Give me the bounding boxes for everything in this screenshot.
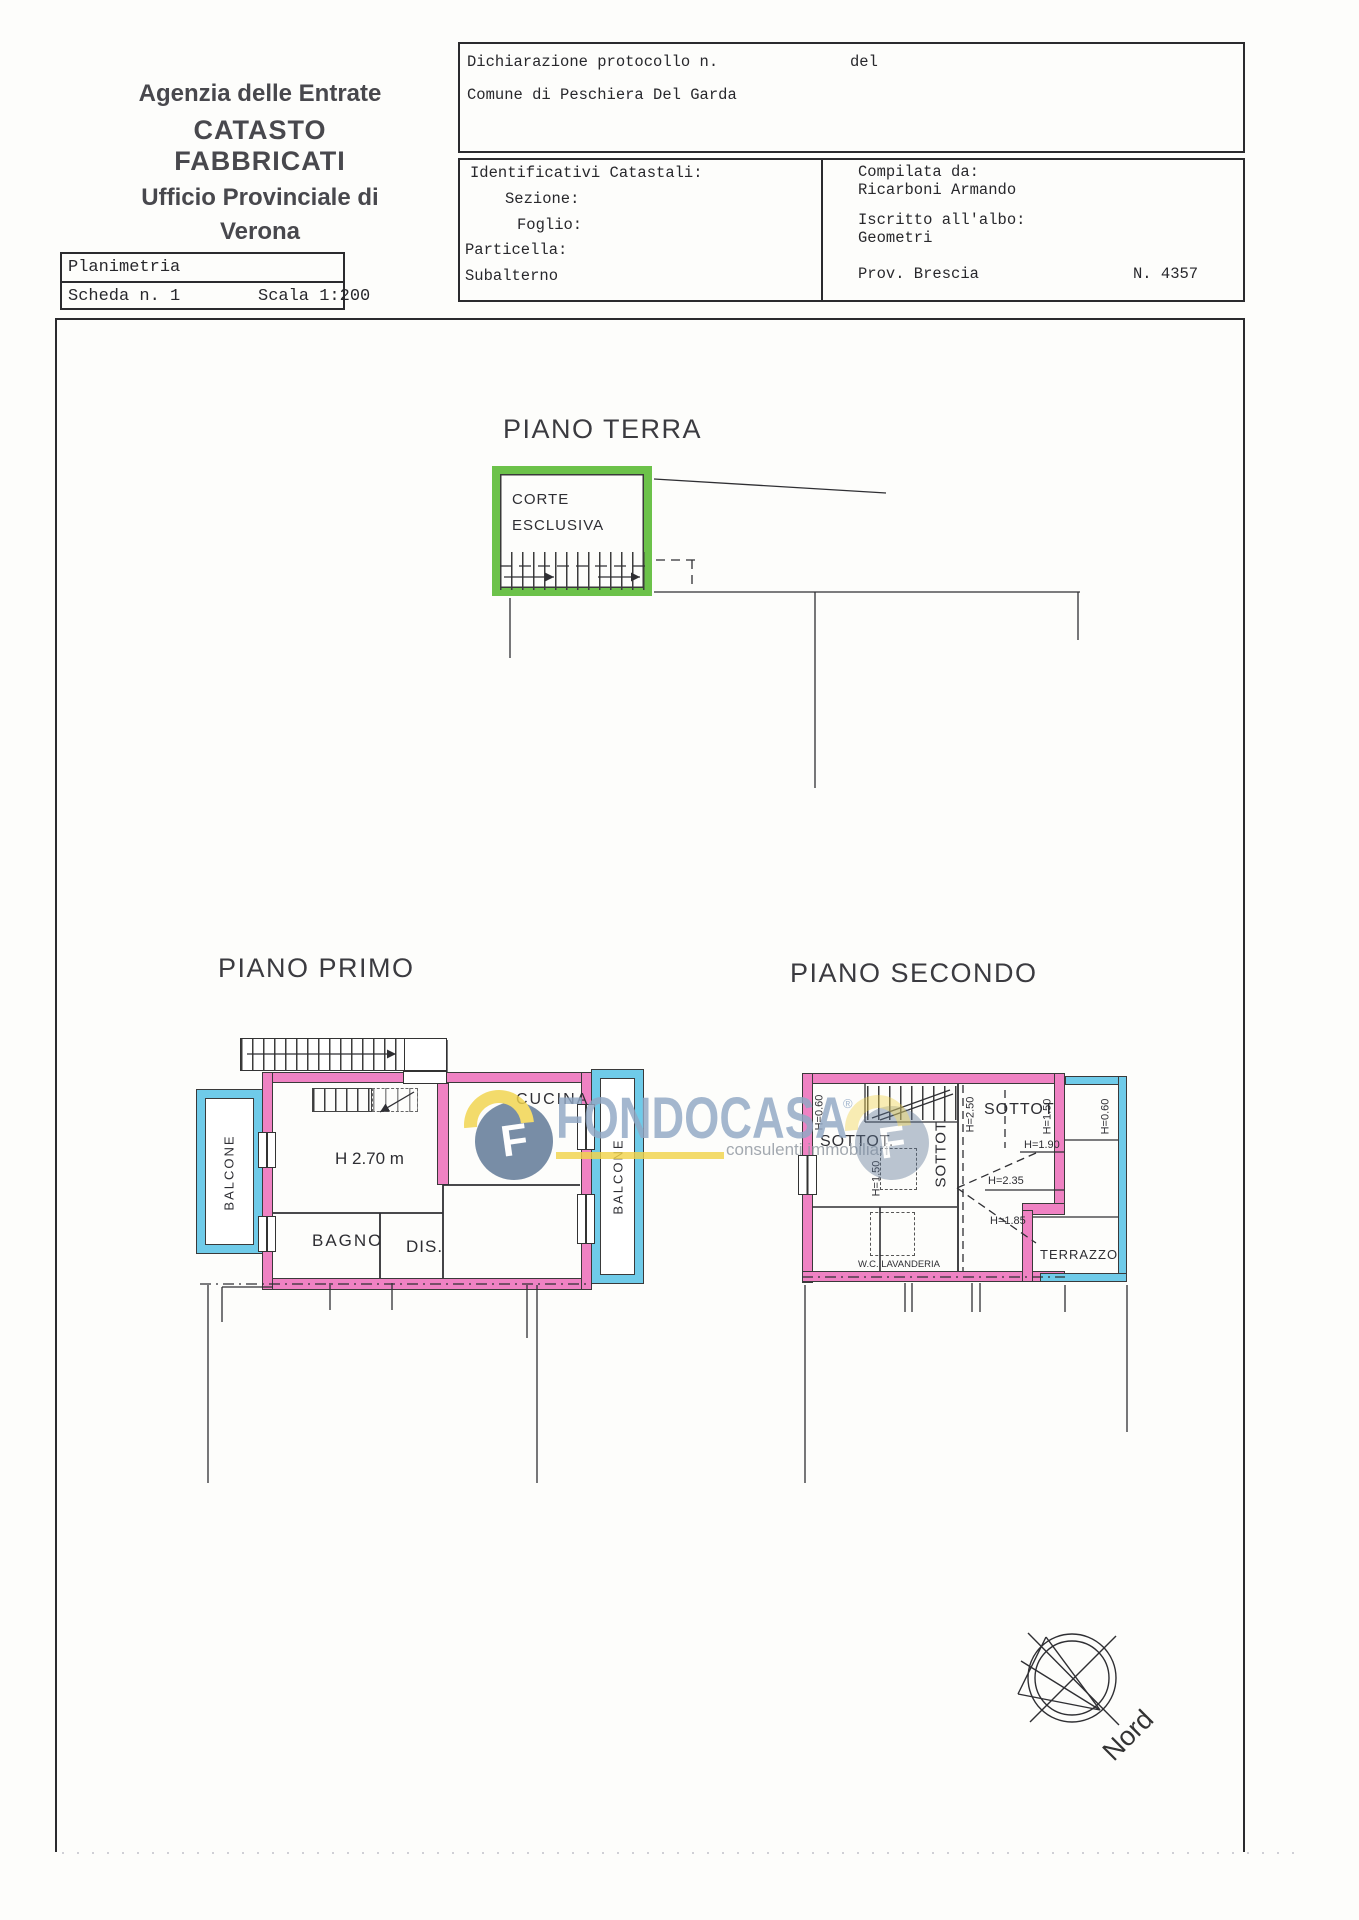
dis-label: DIS. [406, 1238, 443, 1255]
compiler-label: Compilata da: [858, 165, 979, 181]
internal-staircase-dashed [372, 1088, 418, 1112]
prov-label: Prov. Brescia [858, 267, 979, 283]
h185-label: H=1.85 [990, 1216, 1026, 1227]
external-staircase-hatch [241, 1039, 405, 1070]
external-staircase [240, 1038, 447, 1071]
office-city: Verona [110, 218, 410, 246]
piano-terra-title: PIANO TERRA [503, 416, 702, 443]
bagno-label: BAGNO [312, 1232, 383, 1249]
agency-name: Agenzia delle Entrate [110, 80, 410, 108]
scala-label: Scala 1:200 [258, 288, 370, 305]
albo-value: Geometri [858, 231, 932, 247]
wall-segment [262, 1278, 592, 1290]
piano-secondo-title: PIANO SECONDO [790, 960, 1038, 987]
scheda-number: Scheda n. 1 [68, 288, 180, 305]
protocol-label: Dichiarazione protocollo n. [467, 55, 718, 71]
foglio-label: Foglio: [517, 218, 582, 234]
identifiers-title: Identificativi Catastali: [470, 166, 703, 182]
ground-stairs-hatch [500, 552, 646, 590]
h235-label: H=2.35 [988, 1176, 1024, 1187]
wall-segment [437, 1083, 449, 1185]
albo-number: N. 4357 [1133, 267, 1198, 283]
corte-label-2: ESCLUSIVA [512, 518, 604, 533]
scheda-box-divider [60, 281, 345, 283]
terrazzo-label: TERRAZZO [1040, 1248, 1118, 1261]
comune-label: Comune di Peschiera Del Garda [467, 88, 737, 104]
planimetria-label: Planimetria [68, 259, 180, 276]
dashed-height-line [870, 1212, 915, 1256]
catasto-title: CATASTO FABBRICATI [110, 115, 410, 177]
wall-segment [262, 1072, 273, 1290]
watermark-underline [556, 1152, 724, 1159]
agency-header: Agenzia delle Entrate CATASTO FABBRICATI… [110, 80, 410, 246]
wc-lavanderia-label: W.C. LAVANDERIA [858, 1260, 940, 1270]
window-symbol [798, 1155, 817, 1195]
wall-segment [802, 1073, 1065, 1084]
stair-landing [403, 1071, 447, 1084]
cadastral-plan-page: Agenzia delle Entrate CATASTO FABBRICATI… [0, 0, 1359, 1920]
corte-label-1: CORTE [512, 492, 569, 507]
protocol-del-label: del [850, 55, 878, 71]
sezione-label: Sezione: [505, 192, 579, 208]
window-symbol [258, 1132, 276, 1168]
terrace-wall-segment [1118, 1076, 1127, 1282]
particella-label: Particella: [465, 243, 567, 259]
window-symbol [577, 1194, 595, 1244]
room-height-label: H 2.70 m [335, 1150, 404, 1167]
compiler-name: Ricarboni Armando [858, 183, 1016, 199]
terrace-wall-segment [1040, 1273, 1127, 1282]
window-symbol [258, 1216, 276, 1252]
internal-staircase-hatch [312, 1088, 372, 1112]
h190-label: H=1.90 [1024, 1140, 1060, 1151]
office-line: Ufficio Provinciale di [110, 184, 410, 212]
subalterno-label: Subalterno [465, 269, 558, 285]
piano-primo-title: PIANO PRIMO [218, 955, 415, 982]
identifiers-box-divider [821, 158, 823, 302]
albo-label: Iscritto all'albo: [858, 213, 1025, 229]
